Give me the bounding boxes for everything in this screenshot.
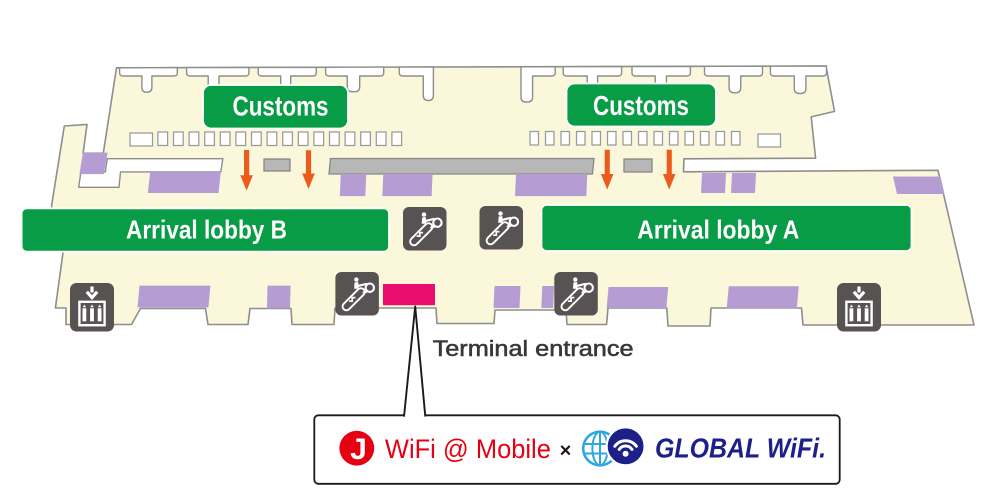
- svg-text:Terminal entrance: Terminal entrance: [433, 336, 634, 361]
- svg-text:WiFi @ Mobile: WiFi @ Mobile: [385, 434, 551, 464]
- svg-text:J: J: [350, 433, 367, 466]
- svg-text:Customs: Customs: [233, 90, 329, 121]
- svg-text:Arrival lobby A: Arrival lobby A: [637, 215, 799, 245]
- svg-text:Arrival lobby B: Arrival lobby B: [126, 215, 287, 245]
- svg-text:Customs: Customs: [593, 90, 689, 121]
- svg-text:×: ×: [560, 440, 572, 462]
- svg-text:GLOBAL WiFi.: GLOBAL WiFi.: [655, 433, 826, 464]
